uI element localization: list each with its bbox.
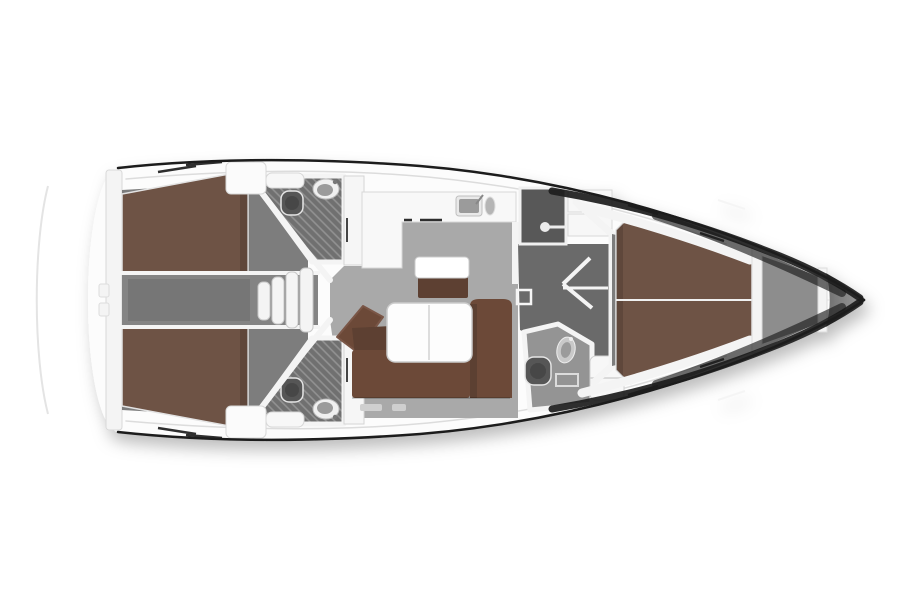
- wardrobe: [520, 188, 566, 244]
- step: [300, 268, 313, 332]
- stern-bulkhead: [106, 170, 122, 430]
- bow-bulkhead: [752, 247, 762, 353]
- faucet-dot: [333, 180, 337, 184]
- sink-basin: [317, 184, 333, 196]
- saloon-seat-top: [415, 257, 469, 278]
- step: [258, 282, 270, 320]
- yacht-floorplan-canvas: [0, 0, 900, 600]
- step: [286, 272, 298, 328]
- hanging-rail-end: [540, 222, 550, 232]
- toilet-bowl: [530, 363, 546, 379]
- engine-hatch: [128, 279, 250, 321]
- bow-hatch-slot: [718, 200, 745, 209]
- cockpit-locker-bottom: [226, 406, 266, 438]
- faucet-dot: [569, 337, 573, 341]
- locker-handle: [392, 404, 406, 411]
- sink-basin: [317, 402, 333, 414]
- galley-sink-basin: [459, 199, 479, 213]
- boat-hull-group: [88, 160, 864, 440]
- galley-basin-small: [485, 197, 495, 215]
- cockpit-locker-top: [226, 162, 266, 194]
- transom-platform-arc: [37, 186, 48, 414]
- saloon-seat-base: [418, 277, 468, 298]
- toilet-bowl: [285, 383, 299, 397]
- bow-hatch-slot: [718, 391, 745, 400]
- transom-step: [99, 284, 109, 297]
- head-shelf: [266, 412, 304, 427]
- step: [272, 277, 284, 324]
- head-shelf: [266, 173, 304, 188]
- toilet-bowl: [285, 196, 299, 210]
- locker-handle: [360, 404, 382, 411]
- wardrobe-box: [520, 188, 566, 244]
- transom-step: [99, 303, 109, 316]
- faucet-dot: [333, 415, 337, 419]
- yacht-floorplan: [0, 0, 900, 600]
